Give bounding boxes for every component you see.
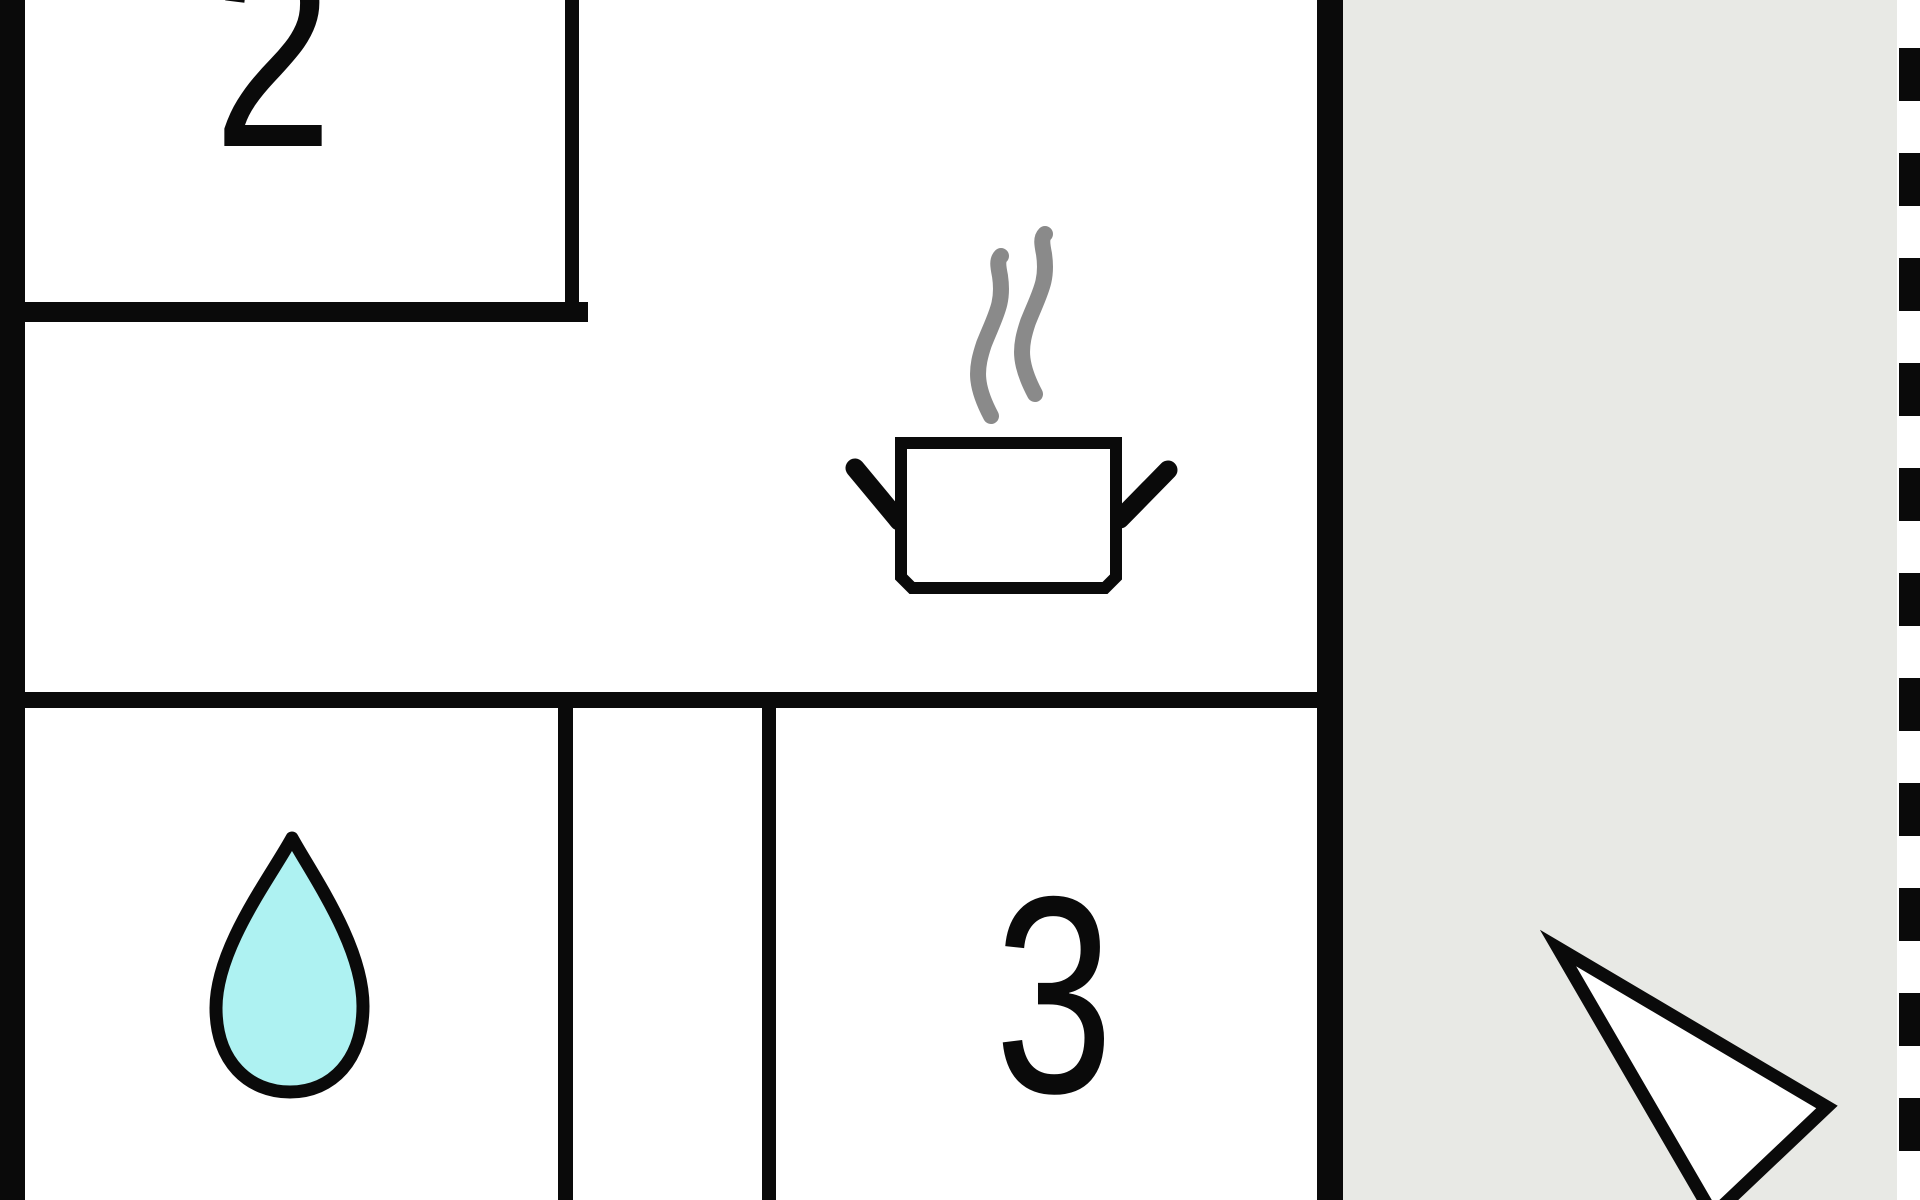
steam-icon (978, 234, 1045, 416)
north-arrow-icon (1558, 948, 1827, 1200)
cooking-pot-icon (855, 443, 1168, 588)
water-drop-icon (216, 838, 363, 1092)
floor-plan-icons (0, 0, 1920, 1200)
floor-plan: 2 3 (0, 0, 1920, 1200)
